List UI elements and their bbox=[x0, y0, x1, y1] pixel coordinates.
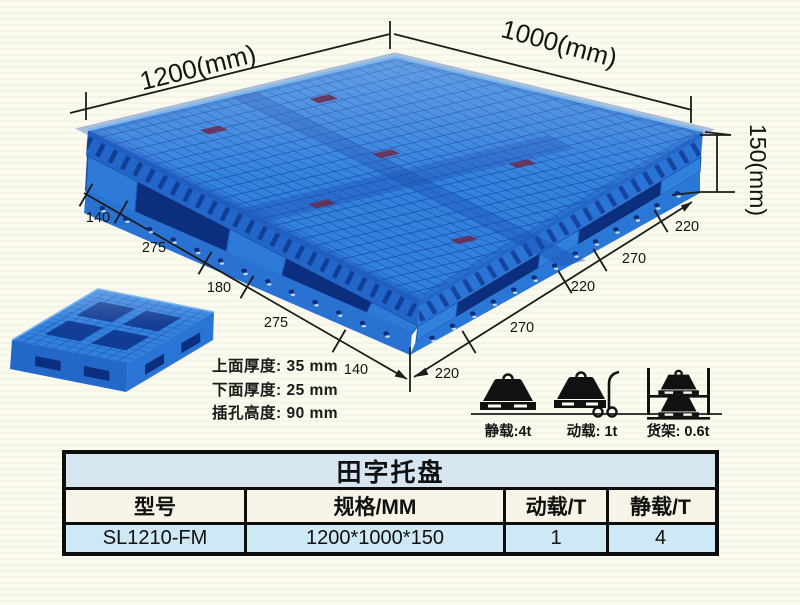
dim-label-1200: 1200(mm) bbox=[137, 38, 259, 96]
dim-label-150: 150(mm) bbox=[745, 124, 771, 216]
pallet-detail bbox=[338, 315, 342, 317]
rack-load-label: 货架: 0.6t bbox=[647, 422, 710, 440]
pallet-detail bbox=[595, 243, 599, 245]
thickness-note-top: 上面厚度: 35 mm bbox=[212, 355, 392, 379]
static-load-label: 静载:4t bbox=[485, 422, 532, 440]
cell-dynamic-load: 1 bbox=[503, 525, 606, 552]
rack-load-icon bbox=[647, 368, 710, 420]
pallet-detail bbox=[218, 258, 224, 262]
pallet-detail bbox=[243, 273, 247, 275]
static-load-icon bbox=[480, 375, 536, 411]
pallet-detail bbox=[385, 335, 389, 337]
pallet-detail bbox=[554, 267, 558, 269]
header-static-load: 静载/T bbox=[606, 490, 712, 522]
pallet-detail bbox=[452, 328, 456, 330]
pallet-detail bbox=[511, 287, 517, 291]
pallet-detail bbox=[534, 280, 538, 282]
pallet-detail bbox=[360, 321, 366, 325]
pallet-detail bbox=[172, 241, 176, 243]
spec-table-header-row: 型号 规格/MM 动载/T 静载/T bbox=[66, 490, 715, 522]
dim-label-left-1: 275 bbox=[142, 240, 166, 256]
header-model: 型号 bbox=[66, 490, 244, 522]
pallet-detail bbox=[656, 207, 660, 209]
dim-label-right-3: 270 bbox=[622, 251, 646, 267]
pallet-detail bbox=[196, 252, 200, 254]
pallet-detail bbox=[194, 248, 200, 252]
dim-label-left-0: 140 bbox=[86, 210, 110, 226]
small-pallet-illustration bbox=[10, 289, 214, 392]
pallet-detail bbox=[220, 262, 224, 264]
pallet-detail bbox=[336, 310, 342, 314]
dim-label-right-4: 220 bbox=[675, 219, 699, 235]
spec-table-data-row: SL1210-FM 1200*1000*150 1 4 bbox=[66, 522, 715, 552]
pallet-detail bbox=[125, 221, 129, 223]
cell-spec: 1200*1000*150 bbox=[244, 525, 503, 552]
pallet-detail bbox=[531, 275, 537, 279]
pallet-detail bbox=[574, 255, 578, 257]
cell-static-load: 4 bbox=[606, 525, 712, 552]
pallet-detail bbox=[613, 227, 619, 231]
spec-table-title: 田字托盘 bbox=[66, 454, 715, 490]
dim-label-left-3: 275 bbox=[264, 315, 288, 331]
pallet-detail bbox=[593, 239, 599, 243]
pallet-detail bbox=[572, 251, 578, 255]
pallet-detail bbox=[265, 279, 271, 283]
pallet-detail bbox=[677, 195, 681, 197]
cell-model: SL1210-FM bbox=[66, 525, 244, 552]
pallet-detail bbox=[636, 219, 640, 221]
dim-label-1000: 1000(mm) bbox=[498, 13, 620, 73]
pallet-detail bbox=[267, 283, 271, 285]
pallet-detail bbox=[634, 215, 640, 219]
pallet-detail bbox=[493, 304, 497, 306]
dim-label-right-2: 220 bbox=[571, 279, 595, 295]
thickness-note-slot: 插孔高度: 90 mm bbox=[212, 402, 392, 426]
pallet-detail bbox=[450, 324, 456, 328]
pallet-detail bbox=[123, 216, 129, 220]
spec-table: 田字托盘 型号 规格/MM 动载/T 静载/T SL1210-FM 1200*1… bbox=[62, 450, 719, 556]
pallet-detail bbox=[513, 292, 517, 294]
dynamic-load-icon bbox=[554, 372, 619, 417]
header-dynamic-load: 动载/T bbox=[503, 490, 606, 522]
pallet-detail bbox=[429, 336, 435, 340]
product-spec-sheet: 1200(mm) 1000(mm) 150(mm) 140 275 180 27… bbox=[0, 0, 800, 600]
pallet-detail bbox=[431, 340, 435, 342]
header-spec: 规格/MM bbox=[244, 490, 503, 522]
pallet-detail bbox=[149, 231, 153, 233]
pallet-detail bbox=[362, 325, 366, 327]
dynamic-load-label: 动载: 1t bbox=[567, 422, 618, 440]
pallet-detail bbox=[291, 294, 295, 296]
pallet-detail bbox=[314, 304, 318, 306]
dim-label-right-0: 220 bbox=[435, 366, 459, 382]
pallet-detail bbox=[99, 206, 105, 210]
pallet-detail bbox=[383, 331, 389, 335]
dim-label-right-1: 270 bbox=[510, 320, 534, 336]
load-capacity-icons: 静载:4t 动载: 1t 货架: 0.6t bbox=[471, 368, 722, 440]
thickness-note-bottom: 下面厚度: 25 mm bbox=[212, 379, 392, 403]
pallet-detail bbox=[674, 191, 680, 195]
pallet-detail bbox=[654, 203, 660, 207]
pallet-detail bbox=[552, 263, 558, 267]
pallet-detail bbox=[615, 231, 619, 233]
thickness-notes: 上面厚度: 35 mm 下面厚度: 25 mm 插孔高度: 90 mm bbox=[212, 355, 392, 426]
pallet-detail bbox=[147, 227, 153, 231]
pallet-detail bbox=[472, 316, 476, 318]
pallet-detail bbox=[102, 210, 106, 212]
pallet-detail bbox=[289, 290, 295, 294]
dim-label-left-2: 180 bbox=[207, 280, 231, 296]
pallet-detail bbox=[241, 269, 247, 273]
pallet-detail bbox=[491, 300, 497, 304]
pallet-detail bbox=[470, 312, 476, 316]
pallet-detail bbox=[170, 237, 176, 241]
pallet-detail bbox=[312, 300, 318, 304]
